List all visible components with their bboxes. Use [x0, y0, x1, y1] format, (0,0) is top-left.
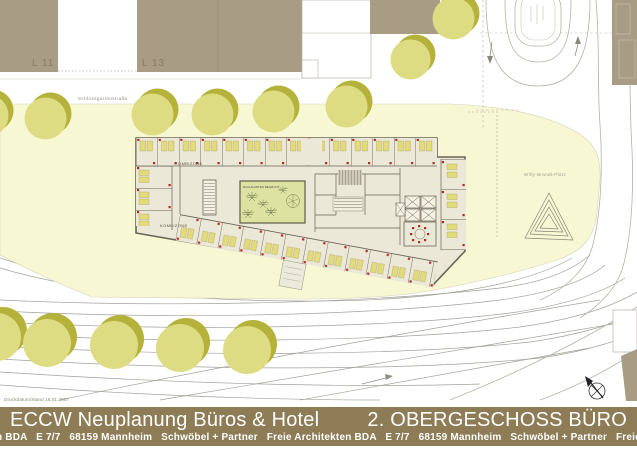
track-direction-arrow: [362, 374, 393, 384]
tree: [391, 35, 436, 80]
office-band-west: [136, 166, 172, 226]
block-l11-label: L 11: [32, 58, 54, 69]
meeting-room: [404, 222, 436, 246]
title-bar: ECCW Neuplanung Büros & Hotel 2. OBERGES…: [0, 407, 637, 446]
kombizone-upper-label: KOMBIZONE: [175, 161, 203, 166]
office-band-east: [441, 159, 466, 250]
tram-loop-island: [515, 0, 561, 46]
stair-tower: [203, 180, 216, 215]
meeting-table: [415, 229, 425, 239]
tree: [90, 315, 144, 369]
block-l13-label: L 13: [142, 58, 165, 69]
street-label: Schlossgartenstraße: [78, 96, 128, 101]
title-row: ECCW Neuplanung Büros & Hotel 2. OBERGES…: [0, 407, 637, 431]
site-plan-drawing: L 11 L 13: [0, 0, 637, 450]
courtyard-label: DACHGARTEN BEGRÜNT: [243, 185, 280, 189]
project-title: ECCW Neuplanung Büros & Hotel: [10, 410, 319, 431]
plaza-label: Willy-Brandt-Platz: [524, 172, 566, 177]
print-info: Druckdatum/Stand 16.01.2007: [4, 397, 69, 403]
block-southeast: [621, 349, 637, 401]
block-outline-southeast: [613, 310, 637, 352]
tree: [223, 320, 277, 374]
block-north-center: [370, 0, 440, 34]
address-ticker: n BDA E 7/7 68159 Mannheim Schwöbel + Pa…: [0, 431, 637, 443]
tree: [433, 0, 480, 40]
tree: [0, 307, 27, 361]
entrance-porch: [279, 260, 306, 290]
plan-sheet: L 11 L 13: [0, 0, 637, 450]
north-arrow: [585, 376, 605, 399]
kombizone-lower-label: KOMBIZONE: [160, 223, 188, 228]
floor-title: 2. OBERGESCHOSS BÜRO: [367, 410, 627, 431]
tree: [23, 313, 77, 367]
railway-trees: [0, 307, 277, 374]
roof-garden-courtyard: DACHGARTEN BEGRÜNT: [240, 181, 305, 223]
tree: [156, 318, 210, 372]
